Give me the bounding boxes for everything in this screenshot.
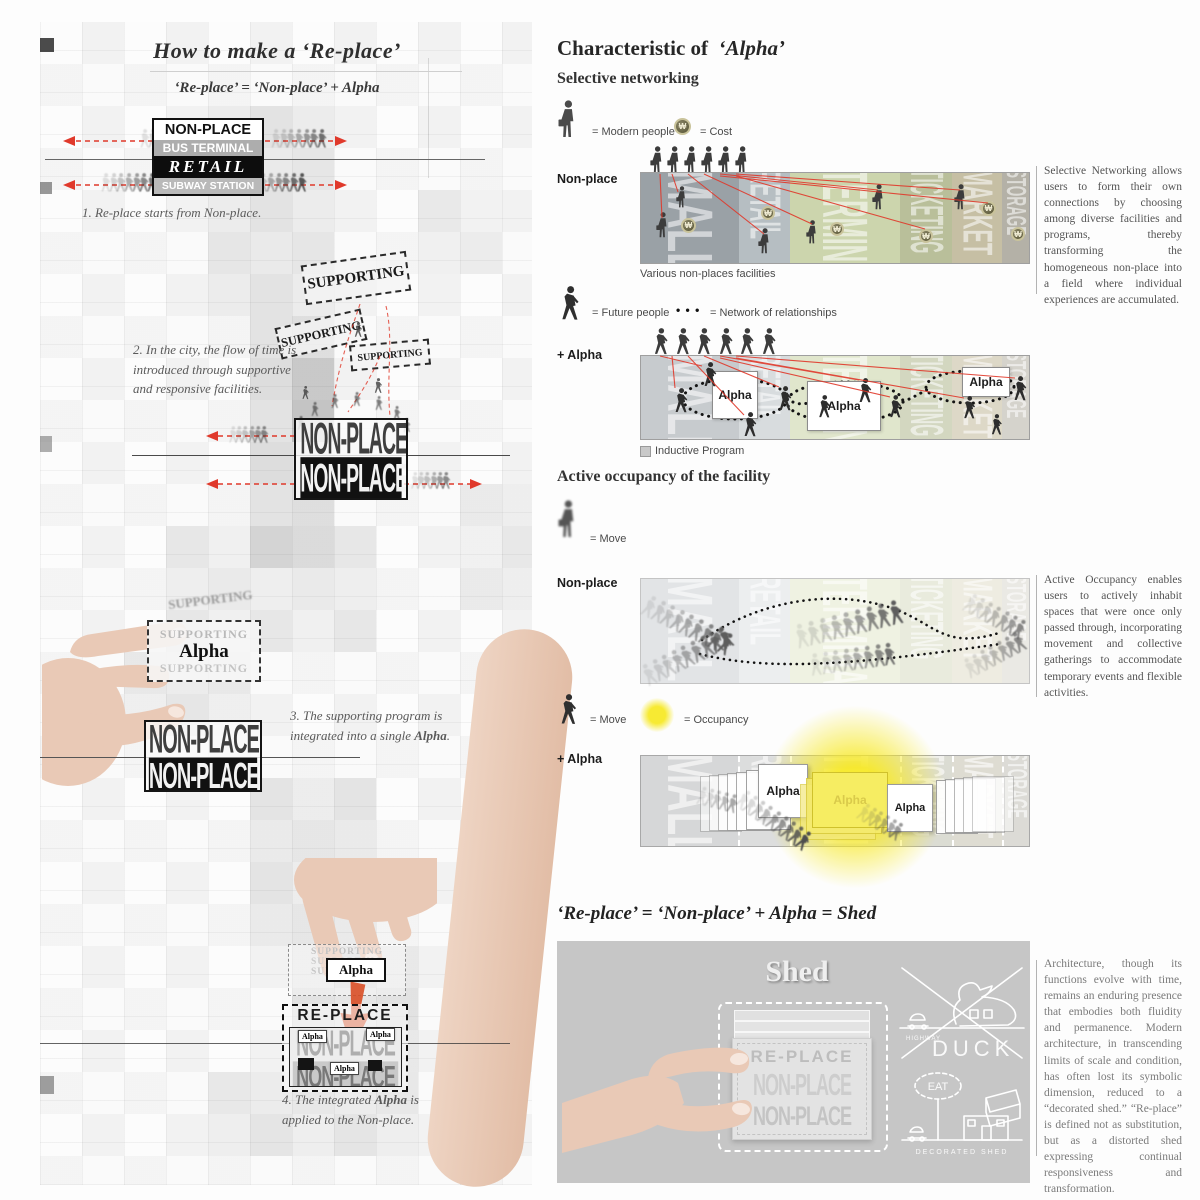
red-dashed-arrow-left: [206, 476, 300, 492]
panel-storage: STORAGE: [1002, 173, 1029, 263]
cost-coin-icon: ₩: [761, 206, 775, 220]
won-symbol: ₩: [679, 122, 687, 131]
supporting-faded: SUPPORTING: [289, 947, 405, 957]
nonplace-stretched-inverse: NON-PLACE: [149, 758, 257, 792]
future-person-icon: [556, 286, 582, 322]
cost-coin-icon: ₩: [830, 222, 844, 236]
walking-person-icon: [855, 378, 874, 404]
alpha-chip: Alpha: [330, 1062, 359, 1075]
person-icon: [656, 212, 670, 238]
nonplace-distorted-box: NON-PLACE NON-PLACE: [294, 418, 408, 500]
baseline-4: [40, 1043, 510, 1044]
modern-people-row: [650, 146, 750, 174]
move-person-icon: [558, 500, 578, 538]
panel-ticketing: TICKETING: [900, 173, 953, 263]
walking-person-icon: [960, 396, 978, 420]
caption-line: 2. In the city, the flow of time is: [133, 340, 296, 360]
supporting-faded: SUPPORTING: [160, 661, 248, 676]
nonplace-distorted-box: NON-PLACE NON-PLACE: [144, 720, 262, 792]
left-title: How to make a ‘Re-place’: [122, 38, 432, 64]
legend-occupancy: = Occupancy: [684, 714, 749, 726]
supporting-label: SUPPORTING: [306, 263, 405, 293]
mosaic-patch: [40, 436, 52, 452]
row-label-alpha: + Alpha: [557, 752, 602, 766]
retail-label: RETAIL: [154, 156, 262, 178]
step1-caption: 1. Re-place starts from Non-place.: [82, 203, 261, 223]
modern-person-icon: [558, 100, 578, 138]
hand-image: [562, 985, 792, 1183]
nonplace-stretched-inverse: NON-PLACE: [300, 457, 401, 500]
legend-network: = Network of relationships: [710, 307, 837, 319]
eat-sign-label: EAT: [928, 1081, 949, 1093]
row-label-nonplace: Non-place: [557, 576, 617, 590]
title-alpha: ‘Alpha’: [719, 36, 786, 60]
selective-paragraph: Selective Networking allows users to for…: [1044, 163, 1182, 308]
left-subtitle: ‘Re-place’ = ‘Non-place’ + Alpha: [122, 80, 432, 97]
row-label-alpha: + Alpha: [557, 348, 602, 362]
occupancy-paragraph: Active Occupancy enables users to active…: [1044, 572, 1182, 701]
paragraph-rule: [1036, 575, 1037, 697]
caption-line: 3. The supporting program is: [290, 706, 450, 726]
alpha-chip: Alpha: [298, 1030, 327, 1043]
walking-person-icon: [671, 388, 690, 414]
caption-line: and responsive facilities.: [133, 379, 296, 399]
walking-person-icon: [1010, 376, 1029, 402]
cost-coin-icon: ₩: [981, 201, 996, 216]
subway-station-label: SUBWAY STATION: [154, 178, 262, 194]
duck-sketch: HIGHWAY DUCK: [898, 962, 1026, 1064]
decorated-shed-sketch: EAT DECORATED SHED: [898, 1068, 1026, 1160]
future-people-row: [650, 328, 778, 356]
caption-line: applied to the Non-place.: [282, 1110, 419, 1130]
bus-terminal-label: BUS TERMINAL: [154, 140, 262, 156]
cost-coin-icon: ₩: [674, 118, 691, 135]
title-prefix: Characteristic of: [557, 36, 708, 60]
walking-person-icon: [700, 362, 719, 388]
walking-person-icon: [815, 395, 833, 419]
equation-text: ‘Re-place’ = ‘Non-place’ + Alpha =: [557, 903, 837, 924]
mosaic-patch: [40, 38, 54, 52]
caption-line: 4. The integrated Alpha is: [282, 1090, 419, 1110]
panel-retail: RETAIL: [739, 579, 791, 683]
replace-label: RE-PLACE: [284, 1006, 406, 1025]
caption-line: introduced through supportive: [133, 360, 296, 380]
panel-ticketing: TICKETING: [900, 356, 953, 439]
alpha-integration-box: SUPPORTING Alpha SUPPORTING: [147, 620, 261, 682]
mosaic-patch: [298, 1058, 314, 1070]
legend-inductive-program: Inductive Program: [655, 445, 744, 457]
people-flow-trail: [226, 426, 270, 444]
nonplace-facility-strip: MALL RETAIL TERMINAL TICKETING MARKET ST…: [640, 172, 1030, 264]
shed-equation-heading: ‘Re-place’ = ‘Non-place’ + Alpha = Shed: [557, 903, 876, 925]
legend-future-people: = Future people: [592, 307, 669, 319]
step2-caption: 2. In the city, the flow of time is intr…: [133, 340, 296, 399]
nonplace-stack-box: NON-PLACE BUS TERMINAL RETAIL SUBWAY STA…: [152, 118, 264, 196]
network-dots-icon: • • •: [676, 303, 700, 317]
shed-title: Shed: [692, 955, 902, 989]
equation-shed: Shed: [837, 903, 876, 924]
paragraph-rule: [1036, 166, 1037, 294]
cost-coin-icon: ₩: [1011, 227, 1025, 241]
alpha-program-box: Alpha: [962, 367, 1010, 397]
mosaic-patch: [40, 182, 52, 194]
cost-coin-icon: ₩: [681, 218, 696, 233]
duck-label: DUCK: [932, 1036, 1014, 1061]
legend-move: = Move: [590, 714, 626, 726]
shed-panel: Shed RE-PLACE NON-PLACE NON-PLACE HIGHWA…: [557, 941, 1030, 1183]
mosaic-patch: [40, 1076, 54, 1094]
program-card: [972, 776, 1014, 832]
move-person-icon: [556, 694, 579, 726]
walking-person-icon: [988, 414, 1004, 436]
cost-coin-icon: ₩: [919, 229, 933, 243]
walking-person-icon: [886, 395, 904, 419]
baseline-1: [45, 159, 485, 160]
walking-person-icon: [740, 412, 759, 438]
caption-line: integrated into a single Alpha.: [290, 726, 450, 746]
mosaic-patch: [368, 1060, 382, 1071]
walking-person-icon: [352, 322, 364, 338]
right-title: Characteristic of ‘Alpha’: [557, 36, 785, 61]
row-label-nonplace: Non-place: [557, 172, 617, 186]
replace-box: RE-PLACE NON-PLACE NON-PLACE Alpha Alpha…: [282, 1004, 408, 1092]
alpha-label: Alpha: [179, 642, 229, 661]
person-icon: [806, 220, 819, 244]
supporting-faded: SUPPORTING: [160, 627, 248, 642]
alpha-label: Alpha: [339, 962, 373, 978]
legend-modern-people: = Modern people: [592, 126, 675, 138]
decorated-shed-label: DECORATED SHED: [916, 1149, 1009, 1156]
selective-heading: Selective networking: [557, 70, 699, 88]
step3-caption: 3. The supporting program is integrated …: [290, 706, 450, 745]
legend-cost: = Cost: [700, 126, 732, 138]
occupancy-glow-icon: [640, 698, 674, 732]
presentation-board: How to make a ‘Re-place’ ‘Re-place’ = ‘N…: [0, 0, 1200, 1200]
person-icon: [954, 184, 968, 210]
alpha-box: Alpha: [326, 958, 386, 982]
nonplace-label: NON-PLACE: [154, 120, 262, 140]
mosaic-patch: [418, 190, 502, 274]
step4-caption: 4. The integrated Alpha is applied to th…: [282, 1090, 419, 1129]
paragraph-rule: [1036, 960, 1037, 1156]
shed-paragraph: Architecture, though its functions evolv…: [1044, 956, 1182, 1197]
construction-line: [428, 58, 429, 178]
people-flow-trail: [268, 129, 329, 149]
person-icon: [676, 186, 688, 208]
strip1-caption: Various non-places facilities: [640, 268, 776, 280]
person-icon: [758, 228, 772, 254]
legend-move: = Move: [590, 533, 626, 545]
alpha-chip: Alpha: [366, 1028, 395, 1041]
person-icon: [872, 184, 886, 210]
title-underline: [150, 71, 462, 72]
walking-person-icon: [775, 386, 794, 412]
people-flow-trail: [408, 472, 452, 490]
mosaic-patch: [460, 484, 532, 610]
occupancy-heading: Active occupancy of the facility: [557, 468, 770, 486]
inductive-program-swatch: [640, 446, 651, 457]
panel-ticketing: TICKETING: [900, 579, 953, 683]
